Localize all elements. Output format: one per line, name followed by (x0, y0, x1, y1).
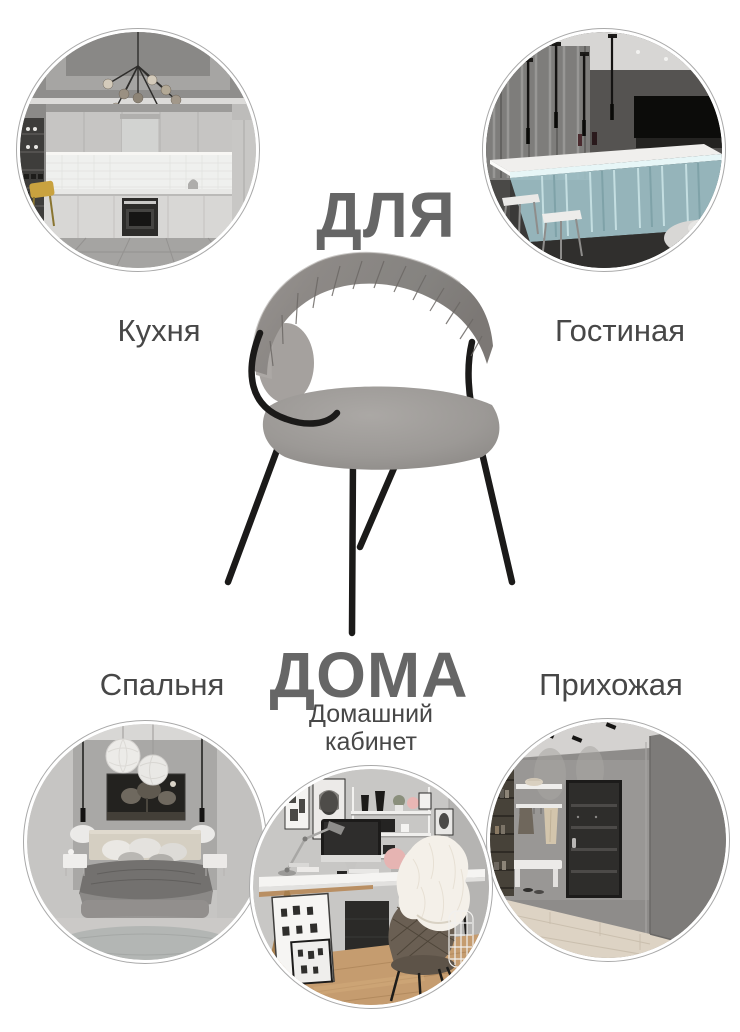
home-office-photo-circle (249, 765, 493, 1009)
product-infographic: ДЛЯ Кухня Гостиная (0, 0, 740, 1032)
home-office-label: Домашний кабинет (291, 700, 451, 756)
kitchen-label: Кухня (118, 313, 201, 349)
hallway-label: Прихожая (539, 667, 683, 703)
hallway-photo (490, 722, 726, 958)
product-chair-image (210, 245, 530, 640)
chair-seat (263, 386, 500, 469)
headline-top: ДЛЯ (316, 183, 456, 247)
bedroom-photo-circle (23, 720, 267, 964)
living-room-photo-circle (482, 28, 726, 272)
kitchen-photo-circle (16, 28, 260, 272)
home-office-photo (253, 769, 489, 1005)
living-room-label: Гостиная (555, 313, 685, 349)
headline-bottom: ДОМА (270, 643, 469, 707)
bedroom-label: Спальня (100, 667, 225, 703)
bedroom-photo (27, 724, 263, 960)
hallway-photo-circle (486, 718, 730, 962)
living-room-photo (486, 32, 722, 268)
product-chair-figure (210, 245, 530, 640)
kitchen-photo (20, 32, 256, 268)
